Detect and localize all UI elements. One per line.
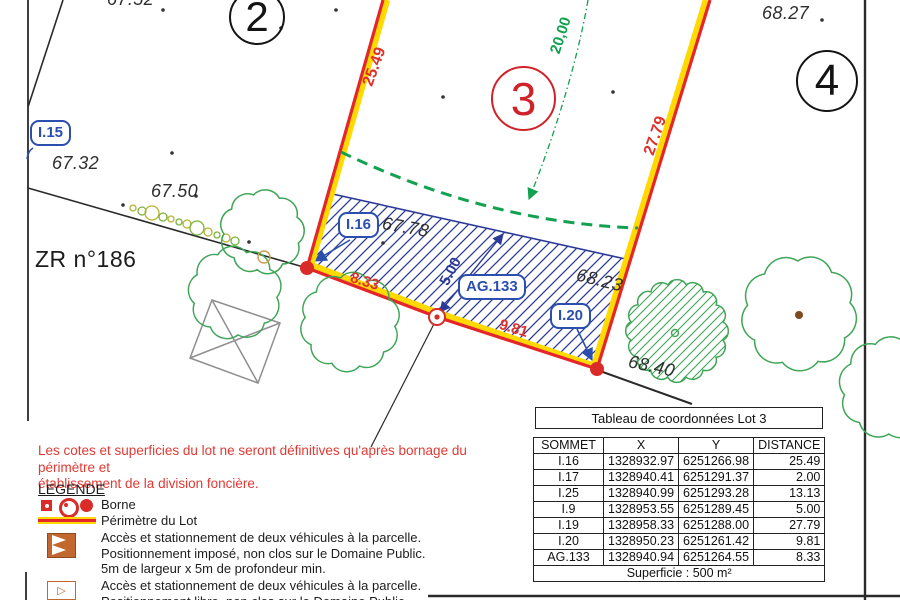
building-footprint (190, 300, 280, 383)
cell-distance: 13.13 (754, 486, 825, 502)
cell-y: 6251289.45 (679, 502, 754, 518)
col-header-y: Y (679, 438, 754, 454)
coord-table-title: Tableau de coordonnées Lot 3 (535, 407, 823, 429)
point-label-i16: I.16 (338, 212, 379, 238)
cell-y: 6251293.28 (679, 486, 754, 502)
coord-table: SOMMET X Y DISTANCE I.16 1328932.97 6251… (533, 437, 825, 582)
perimeter-swatch-icon (38, 517, 96, 524)
legend-access-imposed: Accès et stationnement de deux véhicules… (101, 530, 425, 577)
col-header-x: X (604, 438, 679, 454)
elevation-mid-left: 67.50 (151, 181, 198, 202)
point-label-ag133: AG.133 (458, 274, 526, 300)
point-label-i15: I.15 (30, 120, 71, 146)
survey-notice: Les cotes et superficies du lot ne seron… (38, 443, 518, 493)
cell-distance: 25.49 (754, 454, 825, 470)
borne-target-icon (59, 498, 79, 518)
table-row: I.9 1328953.55 6251289.45 5.00 (534, 502, 825, 518)
cell-x: 1328932.97 (604, 454, 679, 470)
zone-label: ZR n°186 (35, 246, 136, 273)
tree-trunk-dot (795, 311, 803, 319)
cell-sommet: I.19 (534, 518, 604, 534)
table-footer-row: Superficie : 500 m² (534, 566, 825, 582)
spot-point-dots (121, 8, 824, 245)
access-free-icon: ▷ (47, 581, 76, 600)
parcel-3-number: 3 (491, 66, 556, 131)
survey-plan-page: 2 3 4 ZR n°186 I.15 I.16 AG.133 I.20 25.… (0, 0, 900, 600)
elevation-near-i15: 67.32 (52, 153, 99, 174)
cell-x: 1328953.55 (604, 502, 679, 518)
cell-sommet: AG.133 (534, 550, 604, 566)
area-total: Superficie : 500 m² (534, 566, 825, 582)
table-row: I.25 1328940.99 6251293.28 13.13 (534, 486, 825, 502)
access-imposed-icon (47, 533, 76, 558)
legend-perimeter-label: Périmètre du Lot (101, 513, 197, 529)
setback-dashed-line (341, 0, 638, 228)
cell-distance: 2.00 (754, 470, 825, 486)
cell-y: 6251264.55 (679, 550, 754, 566)
legend-title: LEGENDE (38, 481, 105, 497)
cell-x: 1328940.41 (604, 470, 679, 486)
elevation-top-right: 68.27 (762, 3, 809, 24)
parcel-4-number: 4 (796, 50, 858, 112)
borne-dot-icon (80, 499, 93, 512)
cell-y: 6251261.42 (679, 534, 754, 550)
legend-access-free: Accès et stationnement de deux véhicules… (101, 578, 421, 600)
cell-y: 6251288.00 (679, 518, 754, 534)
coord-table-header-row: SOMMET X Y DISTANCE (534, 438, 825, 454)
cell-y: 6251291.37 (679, 470, 754, 486)
cell-distance: 27.79 (754, 518, 825, 534)
table-row: I.19 1328958.33 6251288.00 27.79 (534, 518, 825, 534)
cell-distance: 9.81 (754, 534, 825, 550)
cell-sommet: I.25 (534, 486, 604, 502)
cell-x: 1328950.23 (604, 534, 679, 550)
cell-sommet: I.20 (534, 534, 604, 550)
cell-distance: 8.33 (754, 550, 825, 566)
cell-sommet: I.16 (534, 454, 604, 470)
cell-x: 1328958.33 (604, 518, 679, 534)
cell-y: 6251266.98 (679, 454, 754, 470)
borne-square-icon (41, 500, 52, 511)
table-row: I.20 1328950.23 6251261.42 9.81 (534, 534, 825, 550)
col-header-distance: DISTANCE (754, 438, 825, 454)
table-row: AG.133 1328940.94 6251264.55 8.33 (534, 550, 825, 566)
col-header-sommet: SOMMET (534, 438, 604, 454)
table-row: I.17 1328940.41 6251291.37 2.00 (534, 470, 825, 486)
table-row: I.16 1328932.97 6251266.98 25.49 (534, 454, 825, 470)
elevation-top-left: 67.52 (107, 0, 154, 10)
cell-x: 1328940.94 (604, 550, 679, 566)
cell-sommet: I.17 (534, 470, 604, 486)
point-label-i20: I.20 (550, 303, 591, 329)
cell-distance: 5.00 (754, 502, 825, 518)
cell-sommet: I.9 (534, 502, 604, 518)
cell-x: 1328940.99 (604, 486, 679, 502)
legend-borne-label: Borne (101, 497, 136, 513)
